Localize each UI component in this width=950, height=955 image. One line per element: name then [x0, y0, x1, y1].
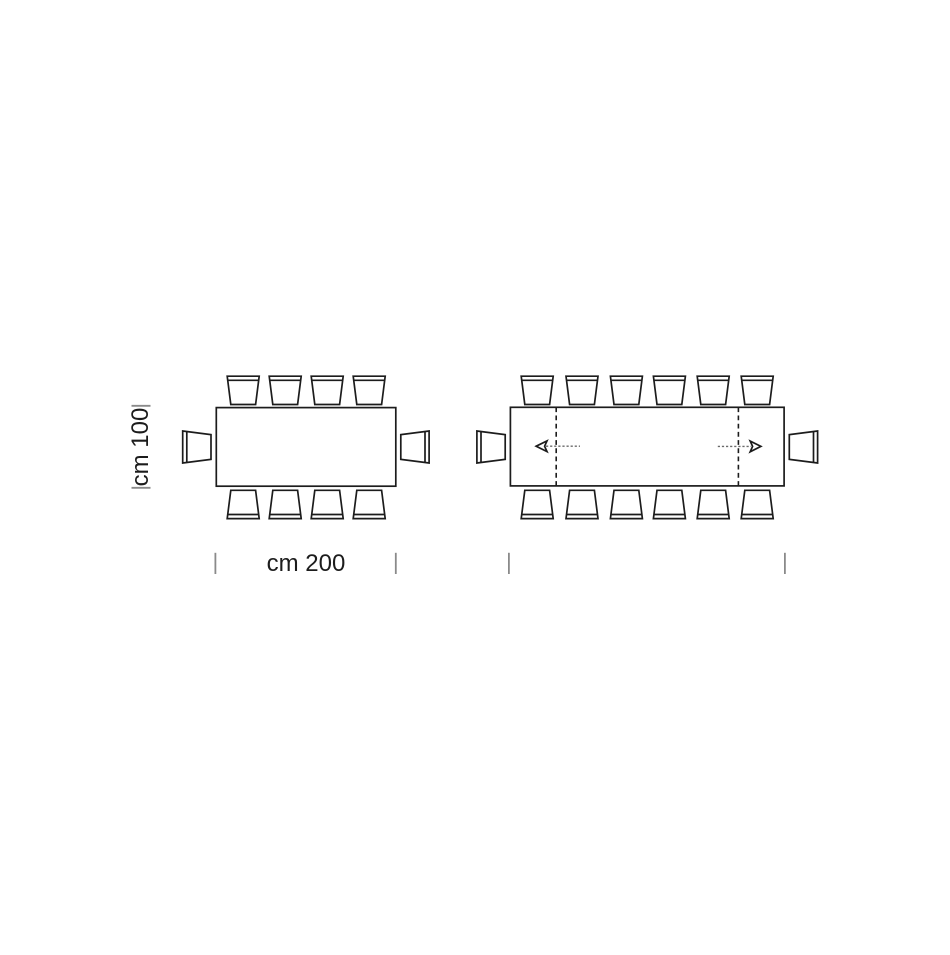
svg-text:cm 200: cm 200	[267, 550, 346, 577]
svg-text:cm 100: cm 100	[127, 408, 154, 487]
